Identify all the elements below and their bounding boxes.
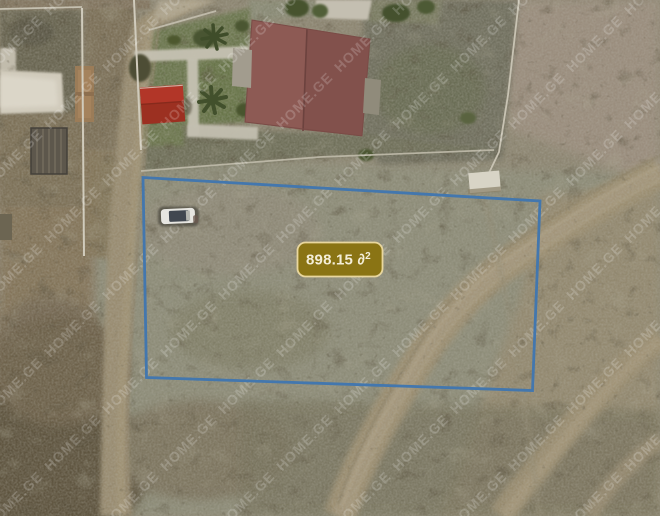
svg-text:898.15 ∂2: 898.15 ∂2 [306,251,371,269]
